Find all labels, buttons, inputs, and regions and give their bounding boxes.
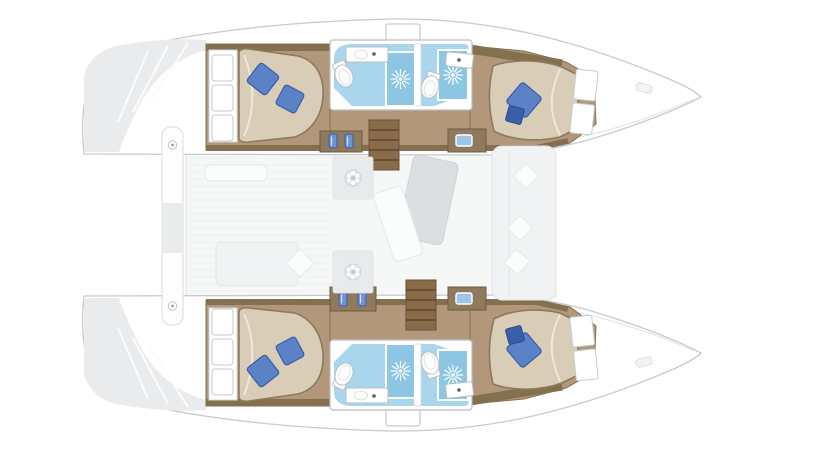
doormat-starboard bbox=[333, 251, 373, 293]
vanity-unit-starboard bbox=[448, 287, 486, 310]
cockpit-bench bbox=[205, 165, 267, 181]
staircase-port bbox=[369, 120, 399, 170]
vanity-unit-port bbox=[448, 129, 486, 152]
cabinet-with-bottles-port bbox=[320, 131, 362, 152]
doormat-port bbox=[333, 157, 373, 199]
catamaran-floorplan bbox=[0, 0, 815, 450]
floorplan-drawing bbox=[0, 0, 815, 450]
staircase-starboard bbox=[406, 280, 436, 330]
salon-sofa bbox=[492, 146, 556, 300]
aft-walkway-plank bbox=[162, 127, 183, 325]
